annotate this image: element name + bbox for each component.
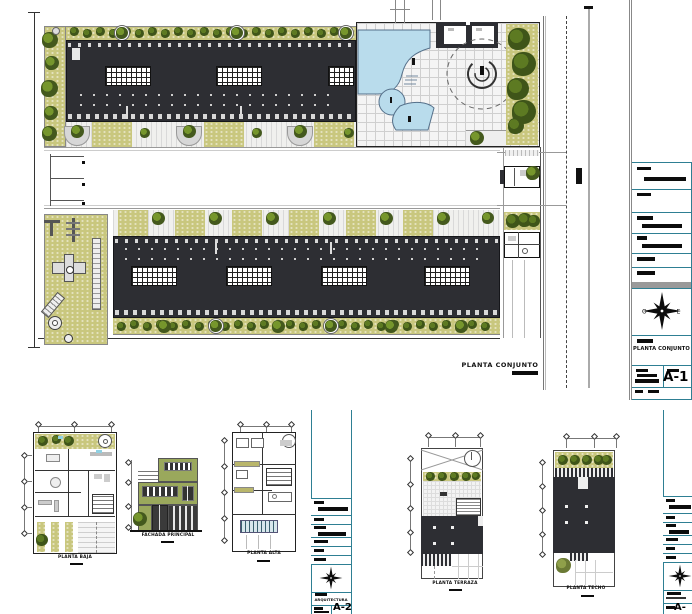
text-bar [314, 540, 328, 543]
dimension-marker-icon [538, 482, 545, 489]
text-bar [635, 379, 659, 383]
text-bar [508, 236, 516, 241]
window-band [142, 486, 178, 497]
text-bar [512, 371, 538, 375]
skylight-grid [328, 66, 354, 86]
drive-centerline [434, 566, 435, 579]
planta-techo-label: PLANTA TECHO [556, 587, 616, 591]
line [66, 228, 80, 230]
line [440, 0, 441, 20]
crosswalk [505, 150, 539, 156]
planter-strip [65, 522, 73, 552]
a1-titleblock-drawing-title: PLANTA CONJUNTO [633, 347, 690, 352]
text-bar [585, 505, 588, 508]
line [68, 449, 69, 516]
dimension-marker-icon [538, 458, 545, 465]
line [44, 220, 60, 223]
yard-planting [92, 122, 132, 147]
skylight-grid [321, 266, 367, 286]
sofa [54, 500, 59, 512]
text-bar [314, 611, 329, 613]
roof-vent-row [125, 258, 485, 260]
planter-icon [52, 27, 60, 35]
line [395, 0, 396, 23]
bed [236, 470, 248, 479]
yard-planting [175, 210, 205, 236]
line [35, 470, 115, 471]
line [44, 208, 500, 209]
dining-table [50, 477, 61, 488]
text-bar [584, 6, 593, 9]
skylight-grid [216, 66, 262, 86]
yard-planting [346, 210, 376, 236]
line [246, 535, 247, 549]
text-bar [666, 556, 676, 559]
roof-slab [421, 516, 483, 554]
fixture [272, 494, 277, 499]
staircase [92, 494, 114, 514]
text-bar [314, 607, 323, 610]
drive-centerline [96, 522, 97, 553]
line [466, 22, 470, 25]
text-bar [314, 558, 326, 561]
dimension-marker-icon [220, 514, 227, 521]
text-bar [644, 177, 686, 181]
text-bar [637, 257, 655, 261]
text-bar [642, 224, 682, 228]
line [504, 244, 540, 245]
yard-planting [232, 210, 262, 236]
line [330, 242, 332, 254]
dimension-marker-icon [406, 504, 413, 511]
roof-vent-row [125, 248, 485, 250]
yard-planting [403, 210, 433, 236]
text-bar [581, 595, 594, 597]
text-bar [433, 526, 436, 529]
play-equipment [64, 334, 73, 343]
line [72, 48, 80, 60]
line [26, 481, 32, 482]
line [50, 200, 84, 201]
text-bar [58, 436, 63, 439]
text-bar [314, 549, 324, 552]
svg-text:E: E [677, 309, 681, 316]
line [26, 533, 32, 534]
text-bar [642, 244, 682, 248]
roof-vent-row [80, 94, 340, 96]
a2-sheet-number: A-2 [333, 603, 352, 613]
line [545, 16, 546, 390]
text-bar [161, 541, 174, 543]
a1-sheet-number: A-1 [663, 371, 688, 385]
dimension-marker-icon [406, 480, 413, 487]
line [497, 205, 566, 206]
dimension-marker-icon [406, 528, 413, 535]
line [50, 178, 84, 179]
line [187, 486, 188, 501]
fixture [104, 474, 110, 482]
text-bar [637, 271, 655, 275]
text-bar [318, 507, 348, 511]
text-bar [565, 505, 568, 508]
sofa [38, 500, 52, 505]
text-bar [637, 374, 657, 377]
text-bar [82, 202, 85, 205]
line [26, 455, 32, 456]
text-bar [451, 542, 454, 545]
text-bar [257, 560, 270, 562]
text-bar [70, 563, 83, 565]
balcony-planter [234, 461, 260, 467]
text-bar [315, 593, 327, 596]
text-bar [314, 501, 324, 504]
window [182, 486, 194, 501]
line [629, 0, 630, 400]
line [432, 0, 433, 20]
line [566, 440, 567, 448]
line [390, 9, 410, 10]
skylight-grid [424, 266, 470, 286]
line [616, 440, 617, 448]
line [88, 470, 89, 516]
play-spiral [52, 320, 58, 326]
a3-sheet-number: A- [674, 603, 686, 613]
line [543, 16, 544, 390]
yard-planting [118, 210, 148, 236]
yard-planting [204, 122, 244, 147]
planta-terraza-label: PLANTA TERRAZA [425, 582, 485, 586]
dimension-marker-icon [220, 536, 227, 543]
dimension-marker-icon [538, 530, 545, 537]
text-bar [669, 530, 689, 534]
line [524, 260, 525, 338]
text-bar [314, 518, 324, 521]
text-bar [576, 168, 582, 184]
spiral-stair [464, 450, 481, 467]
text-bar [314, 526, 326, 529]
text-bar [637, 216, 653, 220]
spiral-stair [103, 439, 108, 444]
text-bar [669, 505, 691, 509]
line [404, 0, 405, 23]
balcony-planter [234, 487, 254, 493]
dimension-marker-icon [538, 506, 545, 513]
line [258, 535, 259, 549]
roof-edge-detail [68, 114, 354, 119]
line [632, 387, 691, 388]
north-compass-icon: OE [642, 291, 682, 331]
line [44, 147, 540, 148]
north-compass-icon [668, 564, 692, 588]
line [66, 234, 80, 236]
fixture [522, 248, 528, 254]
play-ladder [92, 238, 101, 310]
line [159, 505, 160, 531]
line [540, 147, 541, 338]
planter-strip [51, 522, 59, 552]
road-centerline [566, 16, 567, 388]
text-bar [635, 390, 643, 393]
bed [251, 438, 264, 448]
text-bar [440, 492, 447, 496]
line [131, 460, 132, 530]
roof-edge-detail [115, 239, 498, 243]
line [351, 410, 352, 614]
text-bar [636, 369, 648, 372]
plan-baja-label: PLANTA BAJA [45, 556, 105, 560]
line [480, 439, 481, 447]
text-bar [666, 524, 676, 527]
svg-text:O: O [642, 309, 647, 316]
play-equipment [66, 266, 74, 274]
dimension-marker-icon [220, 436, 227, 443]
line [512, 260, 513, 338]
staircase [266, 468, 292, 486]
north-compass-icon [319, 566, 343, 590]
text-bar [82, 161, 85, 164]
drawing-set-canvas: PLANTA CONJUNTO PLANTA BAJA FACHADA PRIN… [0, 0, 692, 614]
line [566, 438, 616, 439]
line [24, 455, 25, 535]
dimension-marker-icon [406, 454, 413, 461]
line [26, 507, 32, 508]
text-bar [666, 547, 675, 550]
text-bar [637, 193, 651, 196]
line [471, 452, 472, 460]
roof-vent-row [80, 104, 340, 106]
text-bar [648, 390, 659, 393]
text-bar [637, 167, 651, 170]
line [35, 492, 81, 493]
line [455, 439, 456, 447]
bed [236, 438, 249, 448]
text-bar [476, 28, 482, 31]
line [28, 347, 40, 348]
line [594, 440, 595, 448]
line [514, 168, 515, 186]
line [50, 156, 84, 157]
text-bar [500, 170, 504, 184]
dimension-marker-icon [538, 550, 545, 557]
roof-edge-detail [115, 310, 498, 315]
line [50, 154, 51, 206]
line [632, 399, 691, 400]
planta-alta-label: PLANTA ALTA [234, 552, 294, 556]
line [270, 535, 271, 549]
pergola-hatch [555, 468, 613, 477]
text-bar [82, 183, 85, 186]
text-bar [585, 521, 588, 524]
text-bar [637, 236, 647, 240]
line [578, 477, 588, 489]
line [518, 232, 519, 258]
skylight-grid [226, 266, 272, 286]
line [44, 205, 500, 206]
text-bar [318, 532, 346, 536]
window-band [164, 462, 192, 471]
text-bar [637, 339, 653, 343]
line [215, 242, 217, 254]
line [44, 150, 500, 151]
dimension-marker-icon [220, 488, 227, 495]
terrace-railing [138, 468, 158, 480]
fixture [94, 474, 102, 479]
line [35, 516, 115, 517]
text-bar [433, 542, 436, 545]
text-bar [565, 521, 568, 524]
table [46, 454, 60, 462]
text-bar [666, 597, 686, 599]
line [588, 8, 590, 388]
text-bar [666, 516, 675, 519]
site-plan-title: PLANTA CONJUNTO [455, 362, 545, 369]
text-bar [96, 450, 102, 453]
roof-edge-detail [68, 43, 354, 47]
text-bar [666, 538, 678, 541]
line [478, 516, 483, 526]
text-bar [666, 499, 675, 502]
glazing [168, 505, 198, 531]
line [34, 12, 35, 348]
yard-planting [289, 210, 319, 236]
text-bar [667, 592, 681, 595]
shade-hatch [240, 520, 278, 533]
text-bar [451, 526, 454, 529]
dimension-marker-icon [406, 548, 413, 555]
skylight-grid [131, 266, 177, 286]
line [452, 566, 483, 567]
line [331, 605, 332, 614]
text-bar [280, 440, 292, 446]
line [575, 572, 613, 573]
pergola-hatch [421, 554, 451, 566]
line [428, 439, 429, 447]
fachada-principal-label: FACHADA PRINCIPAL [135, 534, 201, 538]
text-bar [449, 589, 462, 591]
entry-door [152, 505, 168, 531]
staircase [456, 498, 481, 516]
line [28, 12, 40, 13]
line [66, 222, 80, 224]
line [130, 530, 202, 532]
skylight-grid [105, 66, 151, 86]
dimension-marker-icon [220, 462, 227, 469]
line [232, 514, 296, 515]
